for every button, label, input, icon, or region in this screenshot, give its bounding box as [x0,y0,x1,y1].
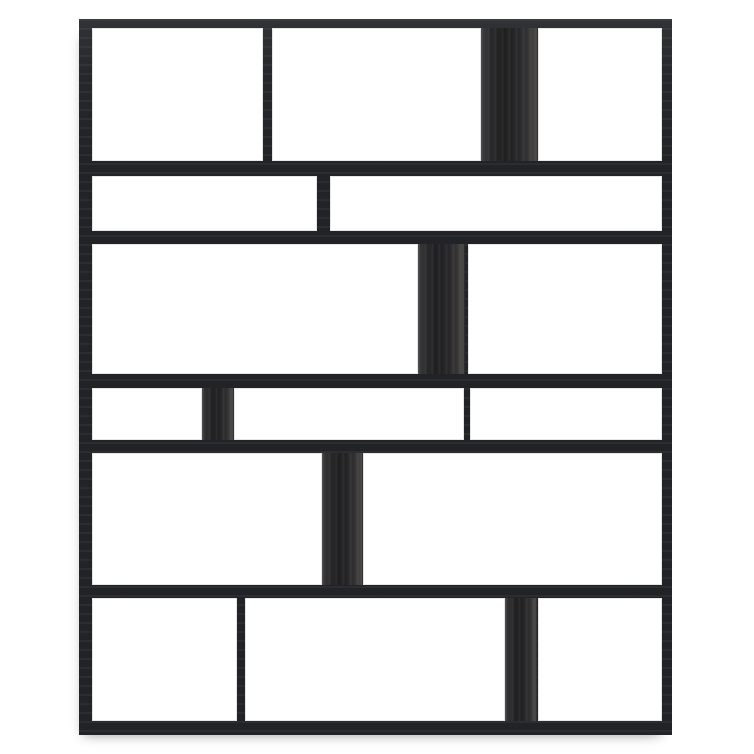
shelf-compartment [470,388,662,440]
shelf-compartment [92,244,418,374]
shelf-compartment [538,28,662,161]
wood-grain-panel [202,388,234,440]
product-photo [0,0,754,754]
wood-grain-panel [418,244,465,374]
shelf-compartment [330,176,662,231]
shelf-compartment [245,598,505,721]
shelf-compartment [92,598,237,721]
shelf-compartment [92,453,322,585]
shelf-compartment [363,453,662,585]
shelf-compartment [92,28,263,161]
wood-grain-panel [505,598,537,721]
shelf-compartment [272,28,481,161]
shelf-compartment [92,176,317,231]
shelf-compartment [538,598,662,721]
shelf-compartment [234,388,464,440]
wood-grain-panel [481,28,538,161]
shelf-compartment [468,244,662,374]
wood-grain-panel [322,453,363,585]
shelving-unit [79,19,672,735]
shelf-compartment [92,388,202,440]
